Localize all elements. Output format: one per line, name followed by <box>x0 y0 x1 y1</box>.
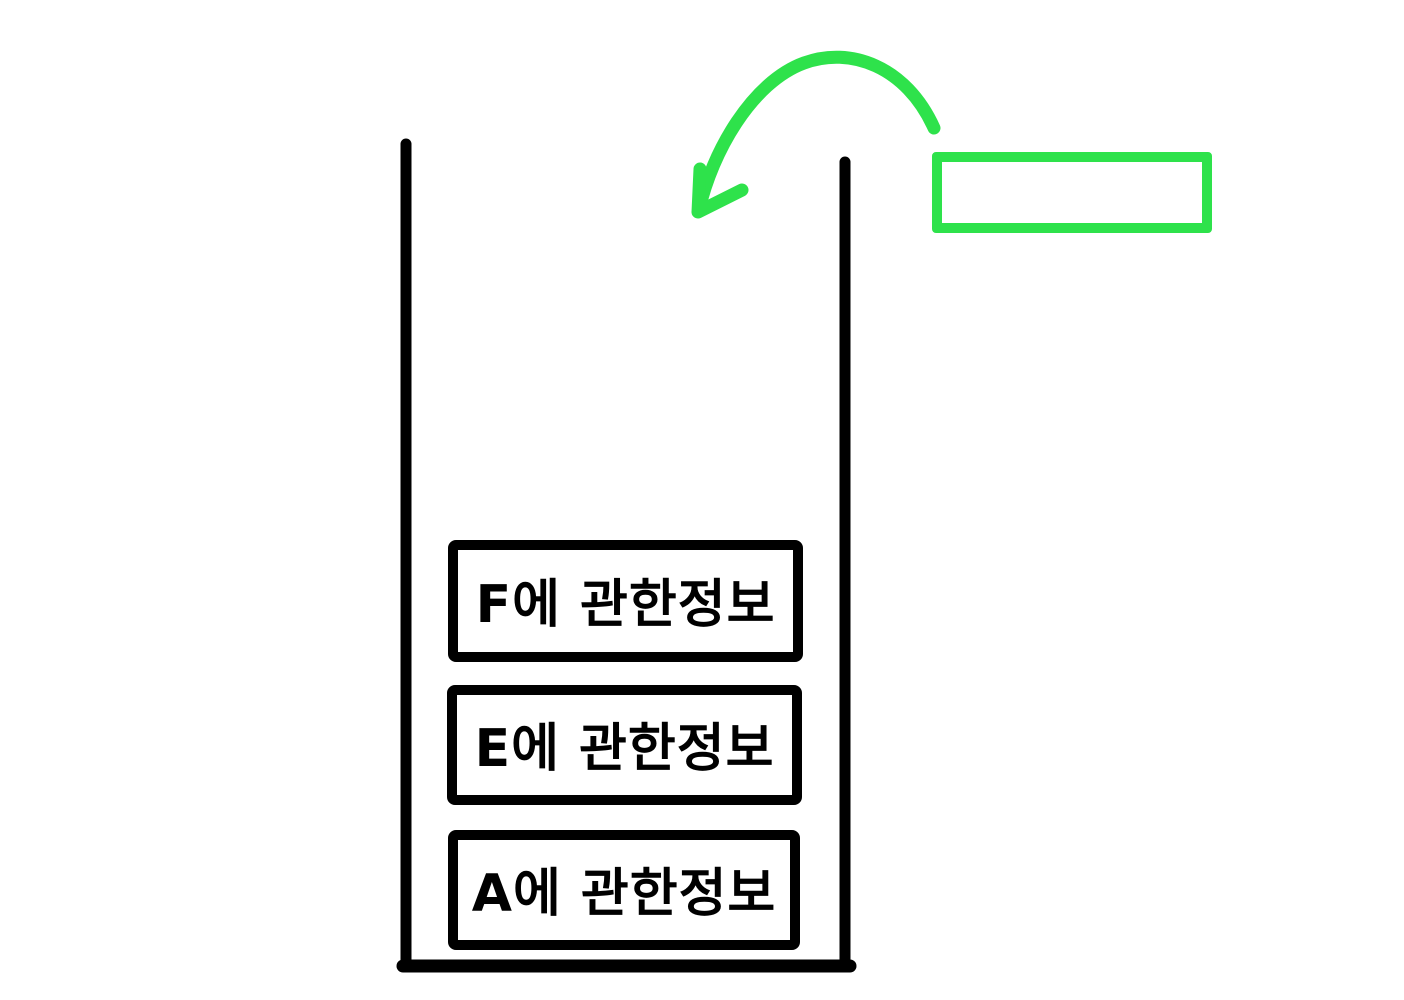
push-arrow-head <box>698 169 742 212</box>
incoming-item-box <box>932 152 1212 233</box>
stack-item-f: F에 관한정보 <box>448 540 803 662</box>
stack-item-e-label: E에 관한정보 <box>475 706 775 781</box>
stack-item-e: E에 관한정보 <box>447 685 802 805</box>
stack-item-a: A에 관한정보 <box>448 830 800 950</box>
stack-item-a-label: A에 관한정보 <box>472 851 777 926</box>
stack-push-diagram: F에 관한정보 E에 관한정보 A에 관한정보 <box>0 0 1404 1000</box>
stack-item-f-label: F에 관한정보 <box>476 562 776 637</box>
